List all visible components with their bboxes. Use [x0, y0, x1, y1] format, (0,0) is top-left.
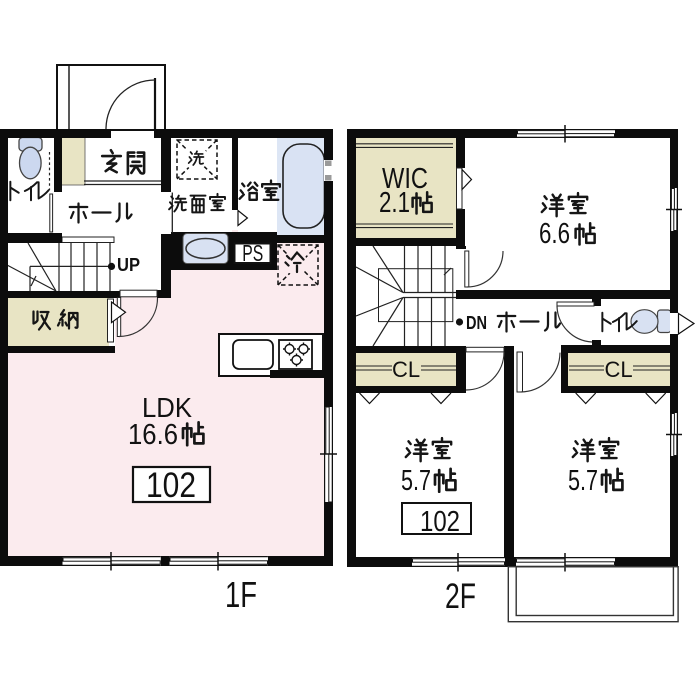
svg-text:16.6: 16.6 — [128, 419, 178, 451]
svg-text:5.7: 5.7 — [401, 465, 431, 497]
svg-text:2F: 2F — [445, 577, 476, 616]
svg-text:102: 102 — [146, 466, 196, 505]
svg-text:6.6: 6.6 — [539, 218, 570, 250]
svg-text:CL: CL — [604, 357, 632, 382]
svg-text:PS: PS — [242, 240, 263, 266]
svg-text:UP: UP — [117, 255, 140, 275]
svg-text:2.1: 2.1 — [379, 187, 410, 219]
svg-text:5.7: 5.7 — [568, 465, 598, 497]
svg-text:DN: DN — [466, 313, 487, 333]
svg-text:CL: CL — [392, 357, 420, 382]
svg-text:102: 102 — [420, 506, 460, 538]
svg-text:1F: 1F — [225, 574, 257, 615]
